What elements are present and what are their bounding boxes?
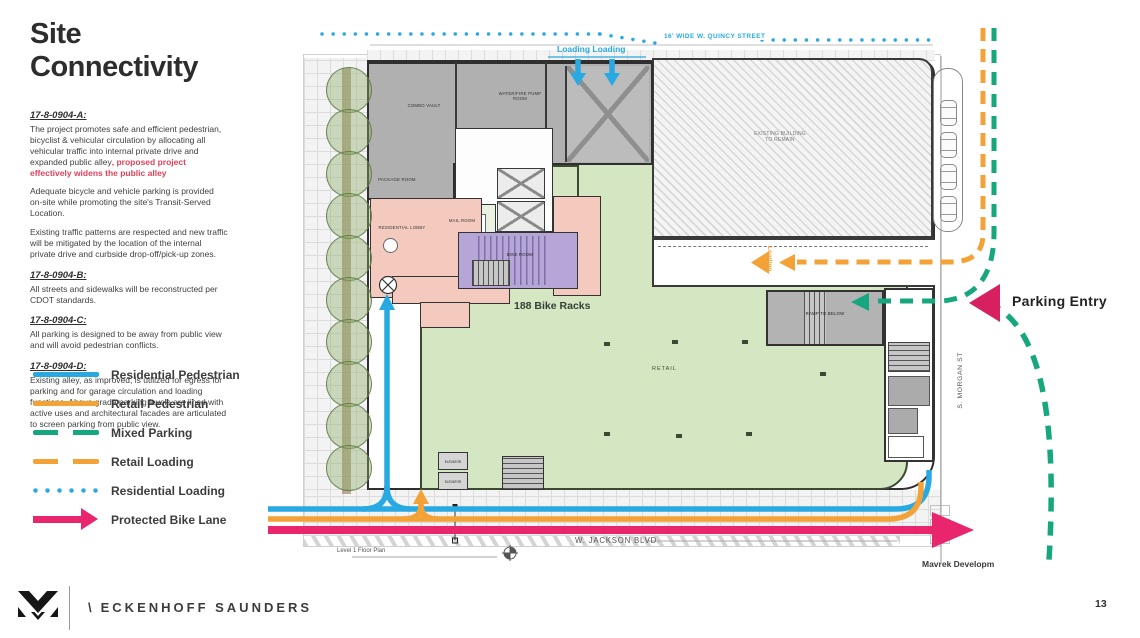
legend-label: Residential Pedestrian [111,368,240,382]
parking-entry-arrowhead-icon [969,284,1000,322]
residential-loading-dot-icon [33,488,99,493]
tree-icon [326,151,372,197]
tree-icon [326,445,372,491]
tree-icon [326,235,372,281]
level-plan-label: Level 1 Floor Plan [337,548,385,554]
slide: Site Connectivity 17-8-0904-A: The proje… [0,0,1140,638]
sidewalk-bottom [304,490,940,536]
room-label-residential-lobby: RESIDENTIAL LOBBY [374,226,430,231]
section-a-paragraph-3: Existing traffic patterns are respected … [30,227,228,260]
legend-label: Retail Pedestrian [111,397,208,411]
section-b-heading: 17-8-0904-B: [30,270,240,281]
tree-icon [326,403,372,449]
footer-divider [69,586,70,630]
page-title: Site Connectivity [30,18,240,84]
section-a-paragraph-1: The project promotes safe and efficient … [30,124,228,178]
parking-entry-label: Parking Entry [1012,293,1107,309]
page-number: 13 [1095,598,1107,610]
legend-label: Mixed Parking [111,426,192,440]
legend-item-mixed-parking: Mixed Parking [33,418,289,447]
legend-item-retail-loading: Retail Loading [33,447,289,476]
car-icon [940,196,957,222]
section-a-heading: 17-8-0904-A: [30,110,240,121]
room-label-combo-vault: COMBO VAULT [400,104,448,109]
room-label-package-room: PACKAGE ROOM [372,178,422,183]
legend-item-protected-bike-lane: Protected Bike Lane [33,505,289,534]
south-elevator: ELEVATOR [438,472,468,490]
tree-icon [326,319,372,365]
bike-racks-label: 188 Bike Racks [514,300,590,312]
legend-item-retail-pedestrian: Retail Pedestrian [33,389,289,418]
existing-building [652,58,933,238]
brand-text: ECKENHOFF SAUNDERS [101,600,312,615]
legend-item-residential-loading: Residential Loading [33,476,289,505]
room-label-pump-room: WATER/FIRE PUMP ROOM [498,92,542,102]
loading-loading-label: Loading Loading [557,44,625,54]
elevator-shaft [497,168,545,199]
legend-item-residential-pedestrian: Residential Pedestrian [33,360,289,389]
protected-bike-lane-arrow-icon [33,508,99,531]
section-c-paragraph: All parking is designed to be away from … [30,329,228,351]
elevator-shaft [497,201,545,232]
section-c-heading: 17-8-0904-C: [30,315,240,326]
footer-brand: \ECKENHOFF SAUNDERS [88,600,312,615]
legend-label: Residential Loading [111,484,225,498]
car-icon [940,164,957,190]
route-residential-loading [600,34,655,43]
mixed-parking-dash-icon [33,430,99,435]
tree-icon [326,109,372,155]
east-stair [888,342,930,372]
jackson-blvd-label: W. JACKSON BLVD. [575,536,660,545]
room-label-retail: RETAIL [652,366,677,372]
room-label-existing-building: EXISTING BUILDING TO REMAIN [752,132,808,144]
ramp-stair [804,292,826,344]
morgan-street-label: S. MORGAN ST [957,352,964,409]
south-elevator: ELEVATOR [438,452,468,470]
loading-dock-room [565,66,649,162]
tree-icon [326,67,372,113]
residential-corridor-tail [420,302,470,328]
retail-pedestrian-line-icon [33,401,99,406]
tree-icon [326,193,372,239]
bike-room-stair [472,260,510,286]
tree-icon [326,361,372,407]
legend-label: Protected Bike Lane [111,513,226,527]
section-a-paragraph-2: Adequate bicycle and vehicle parking is … [30,186,228,219]
room-label-bike-room: BIKE ROOM [500,253,540,258]
legend-label: Retail Loading [111,455,194,469]
car-icon [940,100,957,126]
north-arrow-icon [502,545,518,561]
credit-label: Mavrek Developm [922,559,994,569]
mavrek-logo-icon [16,586,60,626]
south-stair [502,456,544,490]
retail-loading-dash-icon [33,459,99,464]
route-mixed-parking-south [987,303,1051,560]
corridor-centerline [658,246,928,247]
tree-icon [326,277,372,323]
car-icon [940,132,957,158]
legend: Residential Pedestrian Retail Pedestrian… [33,360,289,534]
room-label-ramp: RAMP TO BELOW [772,312,878,317]
room-label-mail-room: MAIL ROOM [440,219,484,224]
quincy-street-label: 16' WIDE W. QUINCY STREET [662,33,767,40]
section-b-paragraph: All streets and sidewalks will be recons… [30,284,228,306]
residential-pedestrian-line-icon [33,372,99,377]
brand-slash-icon: \ [88,600,95,615]
loading-side-label: Loading [766,246,773,271]
